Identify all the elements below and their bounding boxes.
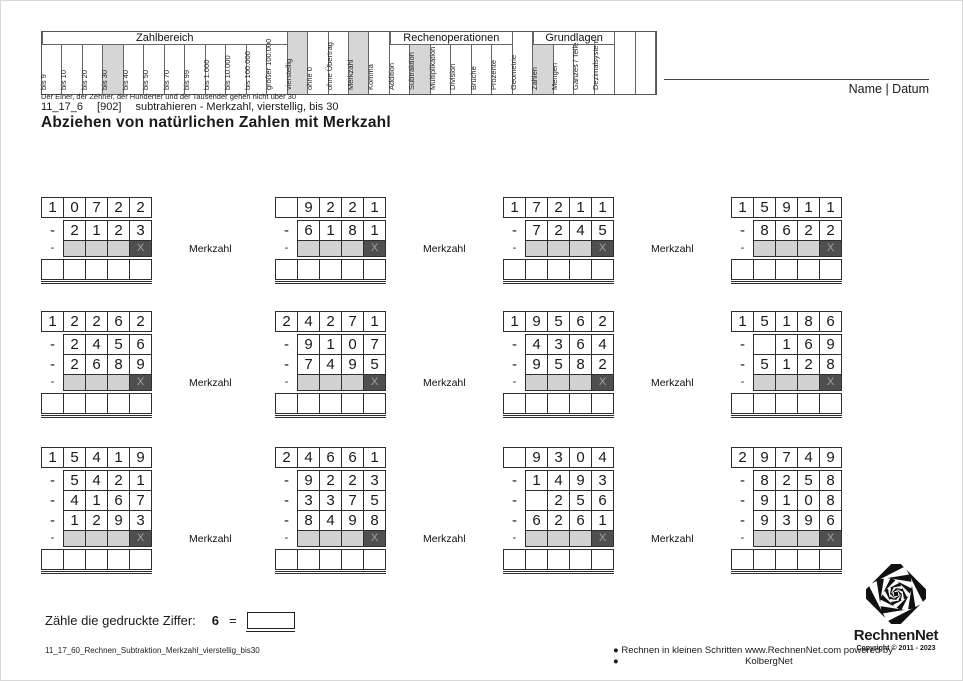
header-column-label: bis 40 (122, 70, 130, 90)
subtrahend-row: -8498 (275, 510, 386, 531)
header-column-label: bis 10.000 (224, 55, 232, 90)
digit-cell: 5 (363, 354, 386, 375)
digit-cell: 9 (753, 447, 776, 468)
subtrahend-block: -169-5128-X (731, 334, 842, 391)
result-cell (319, 549, 342, 570)
minuend-row: 24271 (275, 311, 386, 332)
digit-cell (275, 197, 298, 218)
digit-cell: 8 (297, 510, 320, 531)
header-column-label: bis 20 (81, 70, 89, 90)
merkzahl-x-cell: X (591, 374, 614, 391)
minus-sign: - (503, 490, 526, 511)
merkzahl-x-cell: X (591, 240, 614, 257)
digit-cell: 1 (591, 510, 614, 531)
subtrahend-row: -9582 (503, 354, 614, 375)
result-cell (63, 393, 86, 414)
digit-cell: 1 (775, 490, 798, 511)
result-cell (775, 393, 798, 414)
digit-cell: 8 (107, 354, 130, 375)
merkzahl-label: Merkzahl (189, 377, 232, 389)
result-row (275, 549, 386, 570)
topic-matrix: bis 9bis 10bis 20bis 30bis 40bis 50bis 7… (41, 31, 657, 95)
result-cell (107, 549, 130, 570)
result-cell (275, 393, 298, 414)
minus-sign: - (731, 240, 754, 257)
minus-sign: - (275, 334, 298, 355)
double-rule (41, 415, 152, 418)
subtraction-problem: 9221-6181-XMerkzahl (275, 197, 386, 284)
digit-cell: 8 (363, 510, 386, 531)
result-cell (569, 393, 592, 414)
header-group-Grundlagen: Grundlagen (533, 32, 615, 45)
merkzahl-cell (525, 240, 548, 257)
result-cell (41, 393, 64, 414)
result-row (41, 393, 152, 414)
minus-sign: - (41, 334, 64, 355)
header-column-label: Dezimalsystem (592, 39, 600, 90)
page-title: Abziehen von natürlichen Zahlen mit Merk… (41, 114, 391, 132)
digit-cell: 1 (107, 447, 130, 468)
merkzahl-label: Merkzahl (189, 243, 232, 255)
minus-sign: - (41, 374, 64, 391)
digit-cell: 4 (297, 311, 320, 332)
result-cell (525, 393, 548, 414)
digit-cell: 0 (63, 197, 86, 218)
digit-cell: 1 (775, 354, 798, 375)
minus-sign: - (731, 374, 754, 391)
digit-cell: 7 (297, 354, 320, 375)
digit-cell: 2 (129, 311, 152, 332)
digit-cell: 9 (129, 447, 152, 468)
minus-sign: - (275, 490, 298, 511)
minus-sign: - (41, 240, 64, 257)
header-column-label: bis 1.000 (203, 60, 211, 90)
header-column-label: bis 10 (60, 70, 68, 90)
subtrahend-block: -6181-X (275, 220, 386, 257)
digit-cell: 1 (363, 447, 386, 468)
digit-cell: 3 (319, 490, 342, 511)
merkzahl-label: Merkzahl (423, 243, 466, 255)
minus-sign: - (503, 510, 526, 531)
digit-cell: 2 (731, 447, 754, 468)
merkzahl-x-cell: X (363, 240, 386, 257)
digit-cell: 3 (129, 510, 152, 531)
digit-cell: 8 (819, 470, 842, 491)
result-cell (503, 549, 526, 570)
task-prompt: Zähle die gedruckte Ziffer: (45, 613, 196, 628)
result-cell (319, 393, 342, 414)
minus-sign: - (275, 530, 298, 547)
result-cell (591, 393, 614, 414)
digit-cell: 5 (753, 197, 776, 218)
digit-cell: 2 (107, 470, 130, 491)
digit-cell: 1 (363, 197, 386, 218)
worksheet-ref: [902] (97, 101, 121, 113)
header-column-label: bis 100.000 (244, 51, 252, 90)
merkzahl-x-cell: X (819, 240, 842, 257)
digit-cell: 9 (341, 354, 364, 375)
digit-cell: 5 (753, 311, 776, 332)
result-cell (753, 549, 776, 570)
digit-cell (503, 447, 526, 468)
result-cell (591, 259, 614, 280)
result-cell (819, 549, 842, 570)
digit-cell: 5 (753, 354, 776, 375)
digit-cell: 5 (797, 470, 820, 491)
header-column-label: Komma (367, 64, 375, 90)
subtrahend-row: -5128 (731, 354, 842, 375)
digit-cell: 2 (319, 470, 342, 491)
result-cell (63, 549, 86, 570)
result-cell (731, 393, 754, 414)
header-column-label: Multiplikation (429, 47, 437, 90)
subtrahend-row: -1493 (503, 470, 614, 491)
result-cell (363, 549, 386, 570)
merkzahl-x-cell: X (363, 374, 386, 391)
subtrahend-row: -256 (503, 490, 614, 511)
spiral-diamond-icon (866, 564, 926, 624)
digit-cell: 1 (525, 470, 548, 491)
merkzahl-cell (547, 374, 570, 391)
digit-cell: 2 (819, 220, 842, 241)
subtraction-problem: 24271-9107-7495-XMerkzahl (275, 311, 386, 418)
minus-sign: - (41, 220, 64, 241)
footer-filename: 11_17_60_Rechnen_Subtraktion_Merkzahl_vi… (45, 646, 260, 655)
minus-sign: - (503, 334, 526, 355)
result-cell (85, 259, 108, 280)
result-cell (107, 259, 130, 280)
worksheet-code-line: 11_17_6[902]subtrahieren - Merkzahl, vie… (41, 101, 352, 113)
subtrahend-row: -3375 (275, 490, 386, 511)
double-rule (275, 571, 386, 574)
digit-cell: 7 (363, 334, 386, 355)
digit-cell: 0 (341, 334, 364, 355)
result-cell (85, 549, 108, 570)
subtrahend-row: -2456 (41, 334, 152, 355)
digit-cell: 8 (797, 311, 820, 332)
double-rule (731, 281, 842, 284)
merkzahl-label: Merkzahl (423, 533, 466, 545)
digit-cell: 2 (547, 220, 570, 241)
digit-cell: 8 (753, 220, 776, 241)
digit-cell: 6 (107, 311, 130, 332)
subtraction-problem: 29749-8258-9108-9396-X (731, 447, 842, 574)
digit-cell: 3 (591, 470, 614, 491)
result-cell (819, 393, 842, 414)
minuend-row: 10722 (41, 197, 152, 218)
subtraction-problem: 10722-2123-XMerkzahl (41, 197, 152, 284)
digit-cell: 7 (525, 197, 548, 218)
result-cell (297, 393, 320, 414)
digit-cell: 9 (297, 197, 320, 218)
header-column-label: bis 30 (101, 70, 109, 90)
digit-cell: 1 (731, 197, 754, 218)
merkzahl-x-cell: X (129, 374, 152, 391)
header-column-label: Zahlen (531, 67, 539, 90)
subtrahend-row: -9107 (275, 334, 386, 355)
merkzahl-cell (63, 240, 86, 257)
minus-sign: - (41, 510, 64, 531)
result-cell (753, 259, 776, 280)
digit-cell: 9 (775, 197, 798, 218)
merkzahl-cell (85, 240, 108, 257)
result-row (41, 549, 152, 570)
double-rule (275, 415, 386, 418)
digit-cell: 1 (775, 334, 798, 355)
merkzahl-cell (85, 530, 108, 547)
digit-cell: 2 (547, 510, 570, 531)
minus-sign: - (731, 530, 754, 547)
digit-cell: 3 (129, 220, 152, 241)
result-cell (591, 549, 614, 570)
digit-cell: 9 (107, 510, 130, 531)
result-cell (41, 549, 64, 570)
digit-cell: 6 (569, 510, 592, 531)
equals-sign: = (229, 613, 237, 628)
digit-cell: 5 (547, 311, 570, 332)
header-column-label: Division (449, 64, 457, 90)
subtrahend-row: -4167 (41, 490, 152, 511)
result-row (275, 259, 386, 280)
digit-cell: 1 (319, 334, 342, 355)
result-cell (363, 259, 386, 280)
double-rule (41, 571, 152, 574)
digit-cell: 7 (341, 490, 364, 511)
name-date-label: Name | Datum (664, 82, 929, 96)
result-cell (275, 549, 298, 570)
minus-sign: - (41, 470, 64, 491)
digit-cell: 4 (319, 354, 342, 375)
digit-cell: 1 (129, 470, 152, 491)
digit-cell: 4 (591, 447, 614, 468)
digit-cell: 1 (363, 220, 386, 241)
result-cell (547, 259, 570, 280)
subtraction-problem: 15186-169-5128-X (731, 311, 842, 418)
digit-cell: 2 (107, 220, 130, 241)
digit-cell: 0 (569, 447, 592, 468)
minus-sign: - (731, 510, 754, 531)
header-group-Rechenoperationen: Rechenoperationen (390, 32, 513, 45)
subtraction-problem: 19562-4364-9582-XMerkzahl (503, 311, 614, 418)
digit-cell: 1 (319, 220, 342, 241)
digit-cell: 6 (85, 354, 108, 375)
merkzahl-cell (297, 240, 320, 257)
digit-cell: 4 (85, 470, 108, 491)
digit-cell: 7 (525, 220, 548, 241)
digit-cell: 8 (819, 354, 842, 375)
subtrahend-block: -2456-2689-X (41, 334, 152, 391)
merkzahl-cell (319, 240, 342, 257)
digit-cell: 4 (525, 334, 548, 355)
digit-cell: 7 (775, 447, 798, 468)
merkzahl-label: Merkzahl (651, 377, 694, 389)
subtrahend-row: -4364 (503, 334, 614, 355)
merkzahl-cell (85, 374, 108, 391)
subtrahend-row: -169 (731, 334, 842, 355)
header-column-label: Addition (388, 63, 396, 90)
digit-cell: 9 (525, 311, 548, 332)
digit-cell: 9 (297, 334, 320, 355)
worksheet-code: 11_17_6 (41, 101, 83, 113)
result-cell (731, 549, 754, 570)
header-column-label: Ganzes / Teile (572, 43, 580, 90)
digit-cell: 8 (341, 220, 364, 241)
digit-cell: 1 (503, 311, 526, 332)
merkzahl-row: -X (503, 240, 614, 257)
result-row (731, 393, 842, 414)
digit-cell: 5 (569, 490, 592, 511)
result-row (275, 393, 386, 414)
digit-cell: 4 (319, 510, 342, 531)
minus-sign: - (503, 240, 526, 257)
minuend-row: 19562 (503, 311, 614, 332)
header-column-label: bis 50 (142, 70, 150, 90)
digit-cell: 1 (85, 220, 108, 241)
digit-cell: 1 (731, 311, 754, 332)
digit-cell: 9 (753, 510, 776, 531)
digit-cell: 1 (363, 311, 386, 332)
minus-sign: - (41, 490, 64, 511)
merkzahl-cell (63, 374, 86, 391)
merkzahl-row: -X (731, 240, 842, 257)
merkzahl-cell (547, 240, 570, 257)
result-cell (297, 259, 320, 280)
merkzahl-cell (297, 374, 320, 391)
merkzahl-cell (547, 530, 570, 547)
digit-cell: 9 (819, 334, 842, 355)
merkzahl-row: -X (275, 530, 386, 547)
digit-cell: 3 (363, 470, 386, 491)
digit-cell: 6 (297, 220, 320, 241)
subtrahend-row: -9223 (275, 470, 386, 491)
digit-cell: 5 (547, 354, 570, 375)
result-row (41, 259, 152, 280)
minus-sign: - (41, 530, 64, 547)
double-rule (503, 415, 614, 418)
double-rule (275, 281, 386, 284)
digit-cell: 1 (503, 197, 526, 218)
merkzahl-cell (63, 530, 86, 547)
minus-sign: - (731, 354, 754, 375)
header-column-label: Brüche (470, 66, 478, 90)
digit-cell: 4 (797, 447, 820, 468)
merkzahl-row: -X (41, 240, 152, 257)
minus-sign: - (731, 490, 754, 511)
digit-cell: 6 (129, 334, 152, 355)
subtrahend-row: -8258 (731, 470, 842, 491)
digit-cell: 9 (753, 490, 776, 511)
digit-cell: 9 (797, 510, 820, 531)
merkzahl-cell (297, 530, 320, 547)
result-cell (319, 259, 342, 280)
subtrahend-block: -2123-X (41, 220, 152, 257)
minus-sign: - (275, 354, 298, 375)
result-cell (363, 393, 386, 414)
merkzahl-x-cell: X (363, 530, 386, 547)
footer-slogan: ● Rechnen in kleinen Schritten ● (613, 645, 745, 667)
digit-cell: 6 (591, 490, 614, 511)
double-rule (731, 415, 842, 418)
result-cell (797, 393, 820, 414)
merkzahl-cell (797, 374, 820, 391)
merkzahl-x-cell: X (819, 374, 842, 391)
result-row (731, 549, 842, 570)
merkzahl-row: -X (503, 530, 614, 547)
digit-cell: 0 (797, 490, 820, 511)
subtrahend-block: -9223-3375-8498-X (275, 470, 386, 547)
minus-sign: - (41, 354, 64, 375)
header-column-label: ohne 0 (306, 67, 314, 90)
result-row (503, 259, 614, 280)
digit-cell: 6 (341, 447, 364, 468)
merkzahl-cell (797, 530, 820, 547)
digit-cell: 5 (63, 470, 86, 491)
minuend-row: 17211 (503, 197, 614, 218)
digit-cell: 5 (363, 490, 386, 511)
digit-cell: 2 (63, 354, 86, 375)
subtrahend-block: -7245-X (503, 220, 614, 257)
count-digit-task: Zähle die gedruckte Ziffer: 6 = (45, 612, 295, 629)
brand-name: RechnenNet (846, 627, 946, 644)
minus-sign: - (275, 240, 298, 257)
digit-cell: 2 (107, 197, 130, 218)
header-column-label: bis 70 (163, 70, 171, 90)
merkzahl-cell (341, 374, 364, 391)
digit-cell: 2 (63, 334, 86, 355)
header-column-label: größer 100.000 (265, 39, 273, 90)
merkzahl-cell (525, 374, 548, 391)
digit-cell: 2 (591, 354, 614, 375)
digit-cell: 1 (591, 197, 614, 218)
merkzahl-row: -X (275, 240, 386, 257)
merkzahl-cell (341, 530, 364, 547)
digit-cell: 2 (275, 447, 298, 468)
digit-cell: 2 (63, 220, 86, 241)
subtrahend-row: -7245 (503, 220, 614, 241)
header-column-label: vierstellig (285, 59, 293, 90)
digit-cell: 2 (775, 470, 798, 491)
minus-sign: - (503, 374, 526, 391)
digit-cell: 1 (85, 490, 108, 511)
digit-cell: 2 (797, 220, 820, 241)
digit-cell: 4 (569, 220, 592, 241)
merkzahl-cell (775, 374, 798, 391)
digit-cell: 9 (129, 354, 152, 375)
double-rule (503, 281, 614, 284)
problem-grid: 10722-2123-XMerkzahl9221-6181-XMerkzahl1… (41, 197, 921, 597)
minus-sign: - (503, 530, 526, 547)
minus-sign: - (275, 374, 298, 391)
subtraction-problem: 9304-1493-256-6261-XMerkzahl (503, 447, 614, 574)
subtraction-problem: 17211-7245-XMerkzahl (503, 197, 614, 284)
minuend-row: 15419 (41, 447, 152, 468)
result-cell (275, 259, 298, 280)
subtrahend-row: -2123 (41, 220, 152, 241)
merkzahl-x-cell: X (819, 530, 842, 547)
digit-cell: 5 (107, 334, 130, 355)
result-cell (731, 259, 754, 280)
answer-box (247, 612, 295, 629)
digit-cell: 2 (319, 197, 342, 218)
digit-cell: 6 (107, 490, 130, 511)
minus-sign: - (731, 334, 754, 355)
header-group-Zahlbereich: Zahlbereich (42, 32, 288, 45)
digit-cell: 8 (569, 354, 592, 375)
digit-cell: 3 (297, 490, 320, 511)
subtrahend-block: -8258-9108-9396-X (731, 470, 842, 547)
merkzahl-cell (753, 240, 776, 257)
digit-cell: 1 (63, 510, 86, 531)
